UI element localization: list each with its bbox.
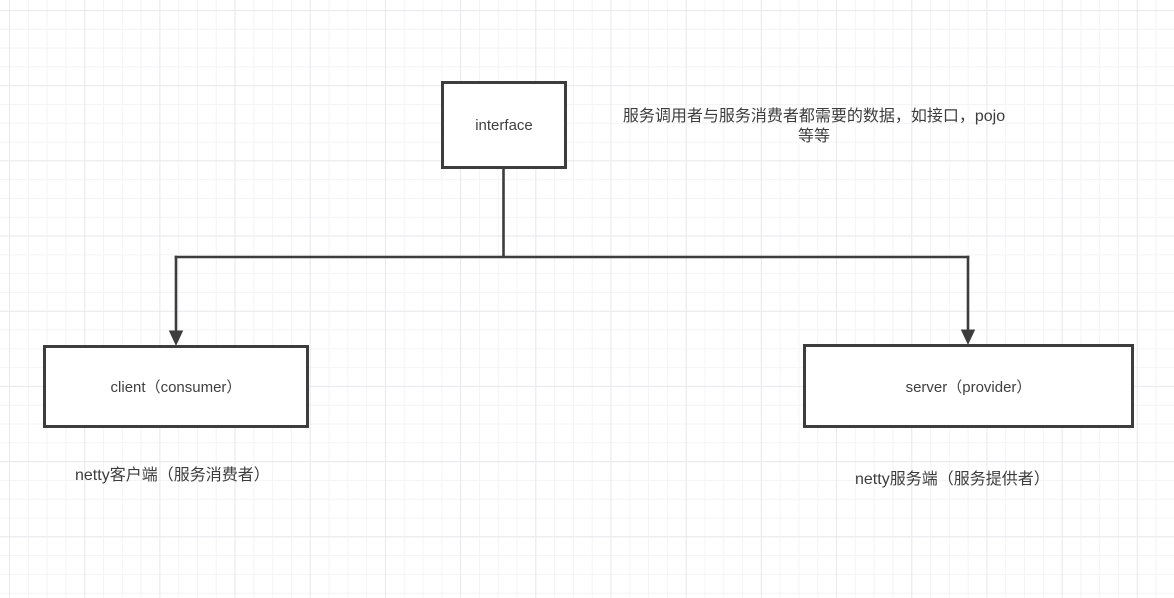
interface-annotation-line2: 等等 — [608, 127, 1020, 147]
interface-annotation: 服务调用者与服务消费者都需要的数据，如接口，pojo 等等 — [608, 107, 1020, 147]
connector-lines — [0, 0, 1174, 598]
node-interface-label: interface — [475, 117, 533, 134]
interface-annotation-line1: 服务调用者与服务消费者都需要的数据，如接口，pojo — [608, 107, 1020, 127]
arrowhead-server — [961, 330, 975, 346]
node-interface[interactable]: interface — [441, 81, 567, 169]
node-server-label: server（provider） — [906, 376, 1032, 397]
node-client-label: client（consumer） — [111, 376, 242, 397]
node-server[interactable]: server（provider） — [803, 344, 1134, 428]
diagram-canvas: interface client（consumer） server（provid… — [0, 0, 1174, 598]
client-annotation: netty客户端（服务消费者） — [75, 466, 270, 486]
server-annotation: netty服务端（服务提供者） — [855, 470, 1050, 490]
node-client[interactable]: client（consumer） — [43, 345, 309, 428]
arrowhead-client — [169, 331, 183, 347]
